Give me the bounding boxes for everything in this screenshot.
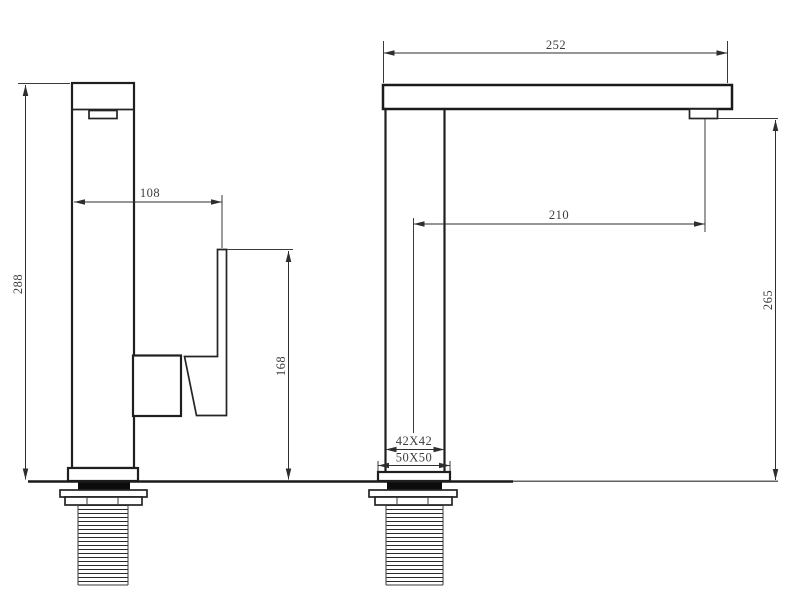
- dimension-label-168: 168: [274, 356, 288, 376]
- dim-outlet-height: 265: [718, 119, 778, 481]
- side-view: 288 108 168: [11, 83, 293, 585]
- drawing-sheet: 288 108 168: [0, 0, 797, 600]
- dim-body-section: 42X42: [386, 434, 445, 450]
- dimension-label-210: 210: [549, 208, 569, 222]
- technical-drawing-canvas: 288 108 168: [0, 0, 797, 600]
- escutcheon-washer: [369, 490, 457, 497]
- spout-outlet: [690, 109, 718, 119]
- dimension-label-50x50: 50X50: [396, 451, 433, 465]
- mounting-nut: [375, 497, 452, 505]
- dim-handle-height: 168: [227, 250, 293, 480]
- base-flange: [378, 472, 450, 481]
- base-flange: [68, 468, 138, 481]
- rubber-gasket: [387, 483, 442, 491]
- dim-spout-overall: 252: [384, 38, 728, 83]
- dim-outlet-reach: 210: [414, 208, 706, 224]
- dimension-label-108: 108: [140, 186, 160, 200]
- dimension-label-288: 288: [11, 274, 25, 294]
- dimension-label-252: 252: [546, 38, 566, 52]
- dimension-label-265: 265: [761, 290, 775, 310]
- threaded-shank: [78, 505, 128, 585]
- threaded-shank: [386, 505, 443, 585]
- dimension-label-42x42: 42X42: [396, 434, 433, 448]
- mounting-nut: [65, 497, 142, 505]
- faucet-body: [72, 83, 134, 468]
- spout-aerator-end: [89, 111, 117, 119]
- handle-base: [133, 356, 181, 417]
- dim-overall-height: 288: [11, 84, 70, 480]
- front-view: 252 210 265 42X42 50: [369, 38, 778, 585]
- riser-column: [386, 109, 445, 472]
- rubber-gasket: [78, 483, 130, 491]
- handle-lever: [185, 250, 227, 416]
- escutcheon-washer: [60, 490, 147, 497]
- spout-bar: [383, 85, 732, 109]
- dim-base-section: 50X50: [378, 451, 450, 473]
